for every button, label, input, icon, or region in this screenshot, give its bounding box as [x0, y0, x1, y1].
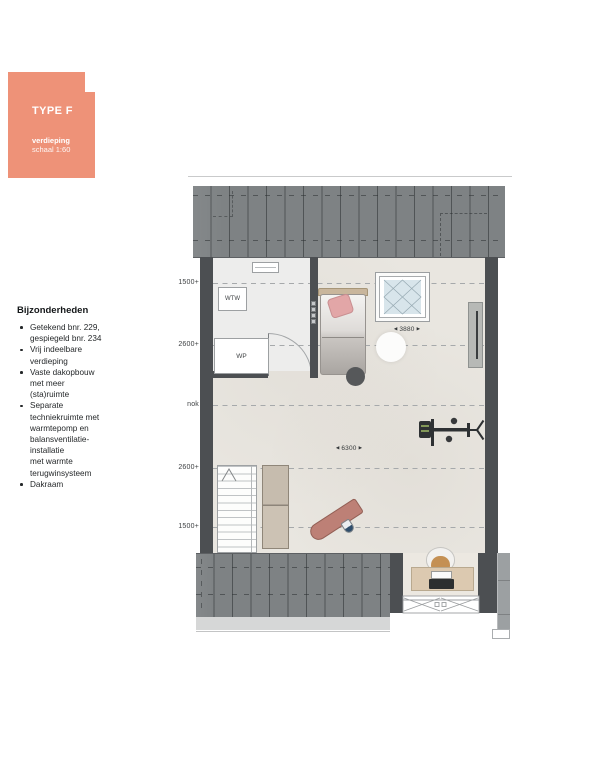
roof-slab-top — [193, 186, 505, 258]
laptop-keyboard — [429, 579, 454, 589]
dormer-side-panel — [497, 553, 510, 631]
floor-plan: WTW WP — [0, 0, 614, 768]
bed-fold-line — [322, 337, 364, 338]
stair-stringer-line — [251, 466, 252, 552]
wardrobe-cabinet — [262, 465, 289, 549]
wall-switches — [311, 301, 316, 324]
room-width-value: 6300 — [339, 445, 358, 452]
panel-seam — [498, 614, 510, 615]
roof-dashed-line — [193, 195, 505, 196]
side-stool — [346, 367, 365, 386]
right-wall-bottom — [478, 553, 497, 613]
right-wall — [485, 257, 498, 553]
roof-slab-bottom — [196, 553, 390, 618]
ridge-nok-line — [213, 405, 485, 406]
skylight-glass — [384, 280, 421, 314]
staircase — [217, 465, 257, 553]
roof-edge-gutter — [196, 617, 390, 630]
roof-ridge-line — [188, 176, 512, 177]
heat-pump-unit: WP — [214, 338, 269, 374]
skylight-width-dimension: ◀3880▶ — [377, 326, 437, 333]
panel-seam — [498, 580, 510, 581]
ventilation-grille — [252, 262, 279, 273]
skylight-width-value: 3880 — [397, 326, 416, 333]
roof-dashed-outline — [213, 191, 233, 217]
exterior-step — [492, 629, 510, 639]
dormer-window — [403, 596, 479, 613]
heat-recovery-unit: WTW — [218, 287, 247, 311]
room-width-dimension: ◀6300▶ — [319, 445, 379, 452]
wtw-label: WTW — [225, 296, 240, 302]
height-label-nok: nok — [152, 401, 199, 408]
skylight-window — [375, 272, 430, 322]
laptop — [431, 571, 452, 579]
dim-arrow-right-icon: ▶ — [417, 326, 420, 331]
left-wall — [200, 257, 213, 553]
height-label-2600plus: 2600+ — [152, 341, 199, 348]
mirror-glass-line — [476, 311, 478, 359]
dim-arrow-right-icon: ▶ — [359, 445, 362, 450]
roof-dashed-line — [196, 594, 390, 595]
roof-dashed-outline — [440, 213, 487, 256]
roof-edge-line — [196, 631, 390, 632]
wall-mirror — [468, 302, 483, 368]
height-label-2600plus: 2600+ — [152, 464, 199, 471]
roof-dashed-line — [201, 559, 202, 612]
roof-dashed-line — [196, 567, 390, 568]
page: TYPE F verdieping schaal 1:60 Bijzonderh… — [0, 0, 614, 768]
height-label-1500plus: 1500+ — [152, 279, 199, 286]
height-label-1500plus: 1500+ — [152, 523, 199, 530]
dormer-left-wall — [390, 553, 403, 613]
round-rug — [376, 332, 406, 362]
height-contour-line-1500 — [213, 283, 485, 284]
wp-label: WP — [236, 353, 246, 360]
